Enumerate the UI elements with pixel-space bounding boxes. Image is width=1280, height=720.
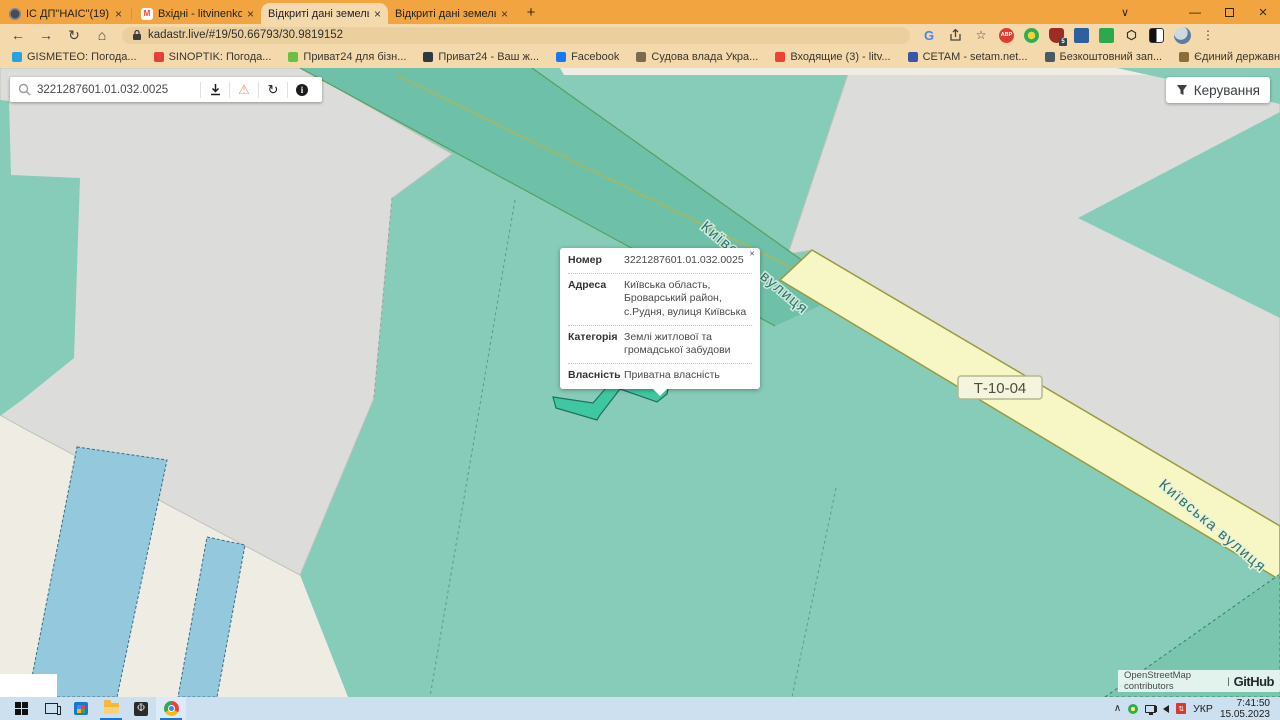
popup-row-value: Приватна власність [624, 369, 752, 383]
popup-row-value: Землі житлової та громадської забудови [624, 331, 752, 358]
cadastre-map[interactable]: Київська вулиця Київська вулиця Т-10-04 … [0, 68, 1280, 697]
favicon [636, 52, 646, 62]
tab-close-icon[interactable]: × [374, 8, 381, 20]
info-button[interactable]: i [288, 79, 316, 101]
popup-row-label: Адреса [568, 279, 624, 320]
system-tray: ∧ ⇅ УКР 7:41:50 15.05.2023 [1114, 697, 1280, 720]
popup-row-label: Власність [568, 369, 624, 383]
filter-icon [1176, 84, 1188, 96]
url-bar[interactable]: kadastr.live/#19/50.66793/30.9819152 [122, 27, 910, 44]
bookmarks-bar: GISMETEO: Погода... SINOPTIK: Погода... … [0, 46, 1280, 68]
bookmark-label: Безкоштовний зап... [1060, 51, 1163, 63]
bookmark-label: Входящие (3) - litv... [790, 51, 890, 63]
new-tab-button[interactable]: + [521, 2, 541, 22]
manage-label: Керування [1194, 83, 1260, 98]
popup-row: Номер 3221287601.01.032.0025 [568, 249, 752, 274]
browser-menu-icon[interactable]: ⋮ [1202, 28, 1214, 42]
favicon [423, 52, 433, 62]
bookmark-item[interactable]: Входящие (3) - litv... [775, 51, 890, 63]
popup-row-value: 3221287601.01.032.0025 [624, 254, 752, 268]
globe-icon [9, 8, 21, 20]
favicon [288, 52, 298, 62]
bookmark-item[interactable]: Facebook [556, 51, 619, 63]
minimize-button[interactable]: — [1178, 0, 1212, 24]
bookmark-label: Приват24 - Ваш ж... [438, 51, 539, 63]
github-link[interactable]: GitHub [1234, 674, 1274, 689]
microsoft-store-button[interactable] [66, 697, 96, 720]
popup-row-value: Київська область, Броварський район, с.Р… [624, 279, 752, 320]
tab-nais[interactable]: ІС ДП"НАІС"(19) × [2, 3, 129, 24]
favicon [1179, 52, 1189, 62]
favicon [12, 52, 22, 62]
warning-button[interactable]: ⚠ [230, 79, 258, 101]
tab-title: Відкриті дані земельного кадас [395, 8, 496, 20]
browser-tabstrip: ІС ДП"НАІС"(19) × M Вхідні - litvinenkoa… [0, 0, 1280, 24]
tab-kadastr-2[interactable]: Відкриті дані земельного кадас × [388, 3, 515, 24]
route-badge: Т-10-04 [958, 376, 1042, 399]
back-button[interactable]: ← [6, 25, 30, 45]
popup-row: Власність Приватна власність [568, 364, 752, 388]
extensions-puzzle-icon[interactable]: ⬡ [1124, 28, 1139, 43]
folder-icon [104, 703, 119, 714]
search-icon [18, 83, 31, 96]
bookmark-label: CETAM - setam.net... [923, 51, 1028, 63]
window-controls: — × [1178, 0, 1280, 24]
tab-gmail[interactable]: M Вхідні - litvinenkoa787@gmail.c × [134, 3, 261, 24]
game-icon: Ф [134, 702, 148, 716]
tab-search-chevron-icon[interactable]: ∨ [1112, 0, 1138, 24]
tab-title: Вхідні - litvinenkoa787@gmail.c [158, 8, 242, 20]
favicon [556, 52, 566, 62]
info-icon: i [296, 84, 308, 96]
tab-close-icon[interactable]: × [501, 8, 508, 20]
profile-avatar[interactable] [1174, 27, 1191, 44]
theme-split-icon[interactable] [1149, 28, 1164, 43]
bookmark-label: Facebook [571, 51, 619, 63]
green-extension-icon[interactable] [1024, 28, 1039, 43]
speaker-icon[interactable] [1163, 705, 1169, 713]
sync-tray-icon[interactable]: ⇅ [1176, 703, 1186, 714]
tab-close-icon[interactable]: × [115, 8, 122, 20]
refresh-button[interactable]: ↻ [259, 79, 287, 101]
cast-extension-icon[interactable] [1099, 28, 1114, 43]
map-attribution: OpenStreetMap contributors | GitHub [1118, 670, 1280, 692]
windows-taskbar: Ф ∧ ⇅ УКР 7:41:50 15.05.2023 [0, 697, 1280, 720]
bookmark-star-icon[interactable]: ☆ [970, 25, 992, 45]
popup-close-icon[interactable]: ✕ [749, 250, 755, 258]
file-explorer-button[interactable] [96, 697, 126, 720]
download-button[interactable] [201, 79, 229, 101]
browser-toolbar: ← → ↻ ⌂ kadastr.live/#19/50.66793/30.981… [0, 24, 1280, 46]
map-white-patch [0, 674, 57, 697]
bookmark-item[interactable]: Приват24 - Ваш ж... [423, 51, 539, 63]
favicon [1045, 52, 1055, 62]
lock-icon [132, 29, 142, 41]
bookmark-item[interactable]: CETAM - setam.net... [908, 51, 1028, 63]
tray-chevron-icon[interactable]: ∧ [1114, 703, 1121, 714]
popup-row: Адреса Київська область, Броварський рай… [568, 274, 752, 326]
bookmark-label: SINOPTIK: Погода... [169, 51, 272, 63]
blue-extension-icon[interactable] [1074, 28, 1089, 43]
bookmark-item[interactable]: GISMETEO: Погода... [12, 51, 137, 63]
tab-kadastr-active[interactable]: Відкриті дані земельного кадас × [261, 3, 388, 24]
attribution-divider: | [1227, 676, 1229, 687]
home-button[interactable]: ⌂ [90, 25, 114, 45]
start-button[interactable] [6, 697, 36, 720]
google-lens-icon[interactable]: G [918, 25, 940, 45]
bookmark-item[interactable]: Судова влада Укра... [636, 51, 758, 63]
tab-separator [131, 8, 132, 20]
reload-button[interactable]: ↻ [62, 25, 86, 45]
shield-badge: 5 [1059, 38, 1067, 46]
store-icon [74, 702, 88, 715]
favicon [154, 52, 164, 62]
windows-logo-icon [15, 702, 28, 715]
tab-title: ІС ДП"НАІС"(19) [26, 8, 110, 20]
restore-button[interactable] [1212, 0, 1246, 24]
manage-button[interactable]: Керування [1166, 77, 1270, 103]
bookmark-item[interactable]: SINOPTIK: Погода... [154, 51, 272, 63]
search-input[interactable] [37, 84, 200, 96]
bookmark-label: Єдиний державни... [1194, 51, 1280, 63]
bookmark-label: Судова влада Укра... [651, 51, 758, 63]
clock[interactable]: 7:41:50 15.05.2023 [1220, 698, 1270, 720]
clock-date: 15.05.2023 [1220, 709, 1270, 720]
bookmark-item[interactable]: Єдиний державни... [1179, 51, 1280, 63]
parcel-search-box: ⚠ ↻ i [10, 77, 322, 102]
clock-time: 7:41:50 [1220, 698, 1270, 709]
favicon [908, 52, 918, 62]
favicon [775, 52, 785, 62]
share-icon[interactable] [944, 25, 966, 45]
shield-extension-icon[interactable]: 5 [1049, 28, 1064, 43]
language-indicator[interactable]: УКР [1193, 703, 1213, 715]
game-launcher-button[interactable]: Ф [126, 697, 156, 720]
route-badge-text: Т-10-04 [974, 380, 1027, 397]
tab-title: Відкриті дані земельного кадас [268, 8, 369, 20]
chrome-icon [164, 701, 179, 716]
url-text: kadastr.live/#19/50.66793/30.9819152 [148, 29, 343, 41]
forward-button[interactable]: → [34, 25, 58, 45]
bookmark-item[interactable]: Приват24 для бізн... [288, 51, 406, 63]
restore-icon [1225, 8, 1234, 17]
popup-row-label: Категорія [568, 331, 624, 358]
task-view-icon [45, 703, 58, 714]
bookmark-label: GISMETEO: Погода... [27, 51, 137, 63]
close-window-button[interactable]: × [1246, 0, 1280, 24]
popup-row: Категорія Землі житлової та громадської … [568, 326, 752, 364]
task-view-button[interactable] [36, 697, 66, 720]
parcel-info-popup: ✕ Номер 3221287601.01.032.0025 Адреса Ки… [560, 248, 760, 389]
bookmark-label: Приват24 для бізн... [303, 51, 406, 63]
antivirus-tray-icon[interactable] [1128, 704, 1138, 714]
osm-attribution-link[interactable]: OpenStreetMap contributors [1124, 670, 1223, 692]
gmail-icon: M [141, 8, 153, 20]
tab-close-icon[interactable]: × [247, 8, 254, 20]
bookmark-item[interactable]: Безкоштовний зап... [1045, 51, 1163, 63]
adblock-extension-icon[interactable]: ABP [999, 28, 1014, 43]
desktop: ІС ДП"НАІС"(19) × M Вхідні - litvinenkoa… [0, 0, 1280, 720]
chrome-taskbar-button[interactable] [156, 697, 186, 720]
popup-row-label: Номер [568, 254, 624, 268]
